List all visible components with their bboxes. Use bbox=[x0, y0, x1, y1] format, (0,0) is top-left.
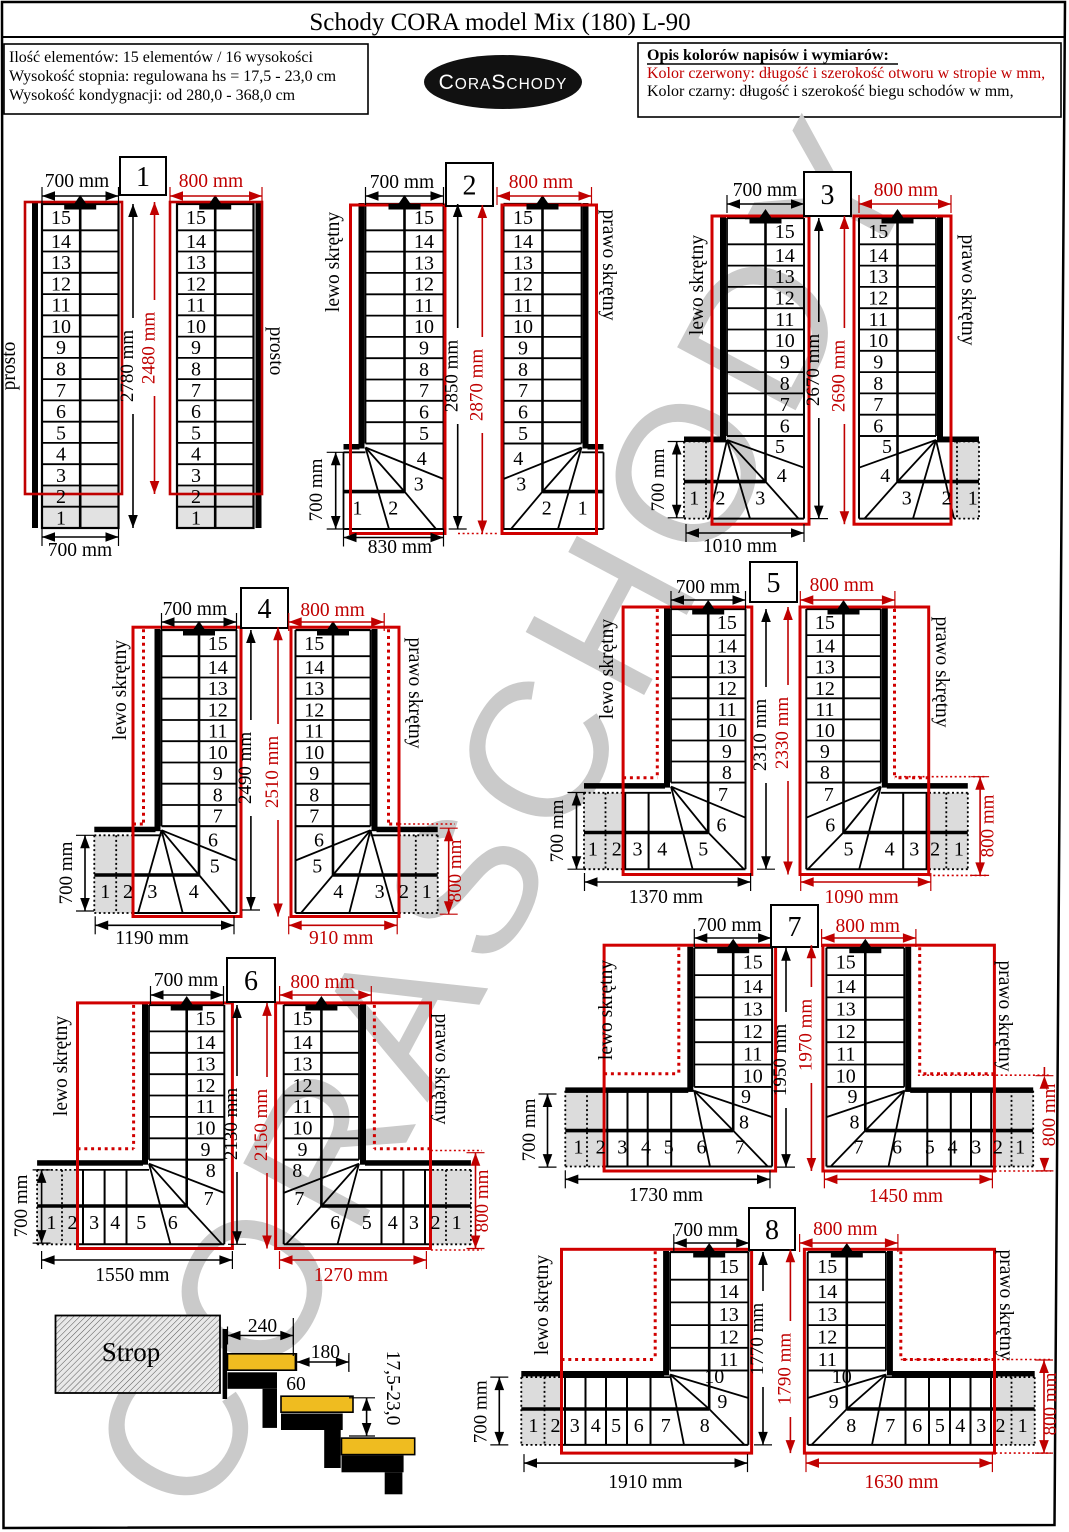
svg-text:700 mm: 700 mm bbox=[733, 180, 797, 201]
svg-text:1950 mm: 1950 mm bbox=[770, 1024, 791, 1097]
svg-text:5: 5 bbox=[518, 423, 528, 445]
svg-text:12: 12 bbox=[293, 1075, 313, 1097]
svg-text:10: 10 bbox=[815, 720, 835, 742]
svg-text:11: 11 bbox=[836, 1043, 855, 1065]
svg-text:4: 4 bbox=[258, 594, 272, 625]
svg-text:Wysokość kondygnacji: od 280,0: Wysokość kondygnacji: od 280,0 - 368,0 c… bbox=[9, 87, 296, 104]
svg-text:7: 7 bbox=[191, 380, 201, 402]
svg-text:6: 6 bbox=[780, 415, 790, 437]
svg-text:14: 14 bbox=[513, 231, 533, 253]
svg-text:prawo skrętny: prawo skrętny bbox=[931, 616, 952, 727]
svg-text:5: 5 bbox=[935, 1415, 945, 1437]
svg-text:1: 1 bbox=[136, 162, 150, 193]
svg-text:6: 6 bbox=[419, 402, 429, 424]
svg-text:5: 5 bbox=[844, 839, 854, 861]
svg-text:8: 8 bbox=[722, 762, 732, 784]
svg-text:15: 15 bbox=[868, 221, 888, 243]
svg-text:13: 13 bbox=[815, 657, 835, 679]
svg-text:2850 mm: 2850 mm bbox=[442, 340, 463, 413]
svg-text:14: 14 bbox=[775, 245, 795, 267]
svg-text:13: 13 bbox=[293, 1054, 313, 1076]
svg-text:10: 10 bbox=[743, 1066, 763, 1088]
svg-text:4: 4 bbox=[955, 1415, 965, 1437]
svg-text:14: 14 bbox=[414, 231, 434, 253]
svg-text:700 mm: 700 mm bbox=[163, 599, 227, 620]
svg-text:4: 4 bbox=[591, 1415, 601, 1437]
svg-text:5: 5 bbox=[312, 856, 322, 878]
svg-text:6: 6 bbox=[697, 1137, 707, 1159]
svg-text:180: 180 bbox=[311, 1342, 340, 1363]
svg-text:9: 9 bbox=[419, 338, 429, 360]
svg-text:Wysokość stopnia: regulowana: Wysokość stopnia: regulowana hs = 17,5 -… bbox=[9, 68, 337, 85]
svg-text:7: 7 bbox=[718, 784, 728, 806]
svg-text:15: 15 bbox=[836, 951, 856, 973]
svg-text:14: 14 bbox=[815, 636, 835, 658]
svg-text:15: 15 bbox=[304, 633, 324, 655]
svg-text:3: 3 bbox=[516, 473, 526, 495]
svg-text:800 mm: 800 mm bbox=[978, 794, 999, 857]
svg-text:1770 mm: 1770 mm bbox=[747, 1303, 768, 1376]
svg-text:5: 5 bbox=[767, 568, 781, 599]
svg-text:2: 2 bbox=[993, 1137, 1003, 1159]
svg-text:5: 5 bbox=[419, 423, 429, 445]
svg-text:5: 5 bbox=[210, 856, 220, 878]
svg-text:13: 13 bbox=[719, 1304, 739, 1326]
svg-text:700 mm: 700 mm bbox=[370, 172, 434, 193]
svg-text:4: 4 bbox=[189, 881, 199, 903]
svg-text:7: 7 bbox=[294, 1188, 304, 1210]
svg-text:8: 8 bbox=[56, 359, 66, 381]
svg-text:3: 3 bbox=[570, 1415, 580, 1437]
svg-text:9: 9 bbox=[717, 1391, 727, 1413]
svg-text:13: 13 bbox=[186, 252, 206, 274]
svg-text:14: 14 bbox=[743, 976, 763, 998]
svg-text:8: 8 bbox=[518, 359, 528, 381]
svg-text:700 mm: 700 mm bbox=[648, 448, 669, 511]
svg-text:2150 mm: 2150 mm bbox=[251, 1089, 272, 1162]
svg-text:14: 14 bbox=[817, 1281, 837, 1303]
svg-text:800 mm: 800 mm bbox=[290, 972, 354, 993]
svg-text:5: 5 bbox=[191, 422, 201, 444]
svg-text:13: 13 bbox=[717, 657, 737, 679]
svg-text:4: 4 bbox=[885, 839, 895, 861]
svg-text:prawo skrętny: prawo skrętny bbox=[957, 234, 978, 345]
svg-text:2: 2 bbox=[68, 1212, 78, 1234]
svg-text:830 mm: 830 mm bbox=[368, 537, 432, 558]
svg-text:prosto: prosto bbox=[265, 327, 286, 376]
svg-text:7: 7 bbox=[419, 380, 429, 402]
svg-text:1: 1 bbox=[46, 1212, 56, 1234]
svg-text:8: 8 bbox=[700, 1415, 710, 1437]
svg-text:3: 3 bbox=[89, 1212, 99, 1234]
svg-text:9: 9 bbox=[56, 337, 66, 359]
svg-text:7: 7 bbox=[309, 806, 319, 828]
svg-text:12: 12 bbox=[208, 699, 228, 721]
svg-text:1: 1 bbox=[422, 881, 432, 903]
svg-text:8: 8 bbox=[820, 762, 830, 784]
svg-text:2: 2 bbox=[123, 881, 133, 903]
svg-text:2: 2 bbox=[388, 498, 398, 520]
svg-text:14: 14 bbox=[196, 1032, 216, 1054]
svg-text:prawo skrętny: prawo skrętny bbox=[994, 960, 1015, 1071]
svg-text:15: 15 bbox=[513, 207, 533, 229]
svg-text:9: 9 bbox=[518, 338, 528, 360]
svg-text:Ilość elementów: 15 elementów: Ilość elementów: 15 elementów / 16 wysok… bbox=[9, 49, 313, 66]
svg-text:2: 2 bbox=[399, 881, 409, 903]
svg-text:8: 8 bbox=[780, 373, 790, 395]
svg-text:13: 13 bbox=[196, 1054, 216, 1076]
svg-text:700 mm: 700 mm bbox=[48, 540, 112, 561]
svg-text:lewo skrętny: lewo skrętny bbox=[687, 235, 708, 335]
svg-text:10: 10 bbox=[775, 330, 795, 352]
svg-text:11: 11 bbox=[305, 721, 324, 743]
svg-text:11: 11 bbox=[513, 295, 532, 317]
svg-text:12: 12 bbox=[51, 273, 71, 295]
svg-text:1: 1 bbox=[1015, 1137, 1025, 1159]
svg-text:6: 6 bbox=[518, 402, 528, 424]
svg-text:2130 mm: 2130 mm bbox=[221, 1088, 242, 1161]
svg-text:12: 12 bbox=[743, 1021, 763, 1043]
svg-text:2330 mm: 2330 mm bbox=[772, 697, 793, 770]
svg-text:7: 7 bbox=[56, 380, 66, 402]
svg-text:1: 1 bbox=[100, 881, 110, 903]
svg-text:10: 10 bbox=[836, 1066, 856, 1088]
svg-text:9: 9 bbox=[780, 352, 790, 374]
svg-text:8: 8 bbox=[765, 1215, 779, 1246]
svg-text:12: 12 bbox=[836, 1021, 856, 1043]
svg-text:lewo skrętny: lewo skrętny bbox=[597, 619, 618, 719]
svg-text:5: 5 bbox=[925, 1137, 935, 1159]
svg-text:10: 10 bbox=[196, 1118, 216, 1140]
svg-text:1: 1 bbox=[56, 507, 66, 529]
svg-text:5: 5 bbox=[362, 1212, 372, 1234]
svg-text:3: 3 bbox=[976, 1415, 986, 1437]
svg-text:9: 9 bbox=[298, 1139, 308, 1161]
svg-text:14: 14 bbox=[51, 231, 71, 253]
svg-text:2: 2 bbox=[612, 839, 622, 861]
svg-text:1010 mm: 1010 mm bbox=[703, 536, 777, 557]
svg-text:10: 10 bbox=[704, 1366, 724, 1388]
svg-text:1550 mm: 1550 mm bbox=[95, 1265, 169, 1286]
svg-text:2670 mm: 2670 mm bbox=[803, 334, 824, 407]
svg-text:4: 4 bbox=[333, 881, 343, 903]
svg-text:7: 7 bbox=[780, 394, 790, 416]
svg-text:8: 8 bbox=[873, 373, 883, 395]
svg-text:11: 11 bbox=[717, 699, 736, 721]
svg-text:14: 14 bbox=[208, 657, 228, 679]
svg-text:13: 13 bbox=[304, 678, 324, 700]
svg-text:6: 6 bbox=[912, 1415, 922, 1437]
svg-text:Opis kolorów napisów i wymiaró: Opis kolorów napisów i wymiarów: bbox=[647, 47, 889, 64]
svg-text:8: 8 bbox=[309, 784, 319, 806]
svg-text:15: 15 bbox=[186, 207, 206, 229]
svg-text:2780 mm: 2780 mm bbox=[117, 330, 138, 403]
svg-text:1190 mm: 1190 mm bbox=[115, 928, 189, 949]
svg-text:3: 3 bbox=[375, 881, 385, 903]
svg-text:1: 1 bbox=[573, 1137, 583, 1159]
svg-text:1: 1 bbox=[1018, 1415, 1028, 1437]
svg-text:700 mm: 700 mm bbox=[306, 458, 327, 521]
svg-text:4: 4 bbox=[948, 1137, 958, 1159]
svg-text:1: 1 bbox=[352, 498, 362, 520]
svg-text:800 mm: 800 mm bbox=[445, 839, 466, 902]
svg-text:2: 2 bbox=[56, 486, 66, 508]
svg-text:3: 3 bbox=[409, 1212, 419, 1234]
svg-text:800 mm: 800 mm bbox=[835, 916, 899, 937]
svg-text:800 mm: 800 mm bbox=[472, 1169, 493, 1232]
svg-text:700 mm: 700 mm bbox=[56, 841, 77, 904]
svg-text:6: 6 bbox=[825, 815, 835, 837]
svg-text:3: 3 bbox=[414, 473, 424, 495]
svg-text:700 mm: 700 mm bbox=[547, 799, 568, 862]
svg-text:12: 12 bbox=[414, 274, 434, 296]
svg-text:3: 3 bbox=[617, 1137, 627, 1159]
svg-text:12: 12 bbox=[513, 274, 533, 296]
svg-text:7: 7 bbox=[213, 806, 223, 828]
svg-text:7: 7 bbox=[204, 1188, 214, 1210]
svg-text:2480 mm: 2480 mm bbox=[139, 312, 160, 385]
svg-text:1730 mm: 1730 mm bbox=[629, 1185, 703, 1206]
svg-text:15: 15 bbox=[196, 1008, 216, 1030]
svg-text:15: 15 bbox=[293, 1008, 313, 1030]
svg-text:9: 9 bbox=[722, 741, 732, 763]
svg-text:2: 2 bbox=[463, 171, 477, 202]
svg-text:3: 3 bbox=[633, 839, 643, 861]
svg-text:15: 15 bbox=[414, 207, 434, 229]
svg-text:1630 mm: 1630 mm bbox=[864, 1472, 938, 1493]
svg-text:7: 7 bbox=[873, 394, 883, 416]
svg-text:13: 13 bbox=[208, 678, 228, 700]
svg-text:9: 9 bbox=[829, 1391, 839, 1413]
svg-text:8: 8 bbox=[213, 784, 223, 806]
svg-text:8: 8 bbox=[419, 359, 429, 381]
svg-text:lewo skrętny: lewo skrętny bbox=[110, 640, 131, 740]
svg-text:14: 14 bbox=[719, 1281, 739, 1303]
svg-text:9: 9 bbox=[873, 352, 883, 374]
svg-text:Kolor czerwony: długość i szer: Kolor czerwony: długość i szerokość otwo… bbox=[647, 65, 1045, 82]
svg-text:910 mm: 910 mm bbox=[309, 928, 373, 949]
svg-text:3: 3 bbox=[755, 488, 765, 510]
svg-text:13: 13 bbox=[775, 266, 795, 288]
svg-text:15: 15 bbox=[208, 633, 228, 655]
svg-text:1970 mm: 1970 mm bbox=[795, 999, 816, 1072]
svg-text:15: 15 bbox=[717, 612, 737, 634]
svg-text:2310 mm: 2310 mm bbox=[750, 699, 771, 772]
svg-text:700 mm: 700 mm bbox=[45, 171, 109, 192]
svg-text:14: 14 bbox=[293, 1032, 313, 1054]
svg-text:15: 15 bbox=[743, 951, 763, 973]
svg-text:11: 11 bbox=[186, 295, 205, 317]
svg-text:6: 6 bbox=[892, 1137, 902, 1159]
svg-text:4: 4 bbox=[56, 444, 66, 466]
svg-text:1: 1 bbox=[968, 488, 978, 510]
svg-text:13: 13 bbox=[868, 266, 888, 288]
svg-text:12: 12 bbox=[186, 273, 206, 295]
svg-text:800 mm: 800 mm bbox=[810, 575, 874, 596]
svg-text:10: 10 bbox=[293, 1118, 313, 1140]
svg-text:13: 13 bbox=[817, 1304, 837, 1326]
svg-text:13: 13 bbox=[51, 252, 71, 274]
svg-text:15: 15 bbox=[719, 1256, 739, 1278]
svg-text:2: 2 bbox=[930, 839, 940, 861]
svg-text:4: 4 bbox=[657, 839, 667, 861]
svg-text:1: 1 bbox=[689, 488, 699, 510]
svg-text:lewo skrętny: lewo skrętny bbox=[596, 960, 617, 1060]
svg-text:7: 7 bbox=[854, 1137, 864, 1159]
svg-text:2: 2 bbox=[542, 498, 552, 520]
svg-text:3: 3 bbox=[56, 465, 66, 487]
svg-text:prawo skrętny: prawo skrętny bbox=[430, 1013, 451, 1124]
svg-text:11: 11 bbox=[293, 1096, 312, 1118]
svg-text:lewo skrętny: lewo skrętny bbox=[51, 1016, 72, 1116]
svg-text:5: 5 bbox=[775, 436, 785, 458]
svg-text:8: 8 bbox=[739, 1112, 749, 1134]
svg-text:2: 2 bbox=[431, 1212, 441, 1234]
svg-text:800 mm: 800 mm bbox=[300, 600, 364, 621]
svg-text:11: 11 bbox=[51, 295, 70, 317]
svg-text:6: 6 bbox=[330, 1212, 340, 1234]
svg-text:6: 6 bbox=[56, 401, 66, 423]
svg-text:800 mm: 800 mm bbox=[874, 180, 938, 201]
svg-text:2870 mm: 2870 mm bbox=[466, 349, 487, 422]
svg-text:7: 7 bbox=[518, 380, 528, 402]
svg-text:2: 2 bbox=[596, 1137, 606, 1159]
svg-text:6: 6 bbox=[314, 830, 324, 852]
svg-text:11: 11 bbox=[414, 295, 433, 317]
svg-text:3: 3 bbox=[909, 839, 919, 861]
svg-text:4: 4 bbox=[641, 1137, 651, 1159]
svg-text:700 mm: 700 mm bbox=[11, 1174, 32, 1237]
svg-text:9: 9 bbox=[820, 741, 830, 763]
svg-text:1: 1 bbox=[528, 1415, 538, 1437]
svg-text:7: 7 bbox=[735, 1137, 745, 1159]
svg-text:12: 12 bbox=[304, 699, 324, 721]
svg-text:7: 7 bbox=[885, 1415, 895, 1437]
svg-text:2: 2 bbox=[996, 1415, 1006, 1437]
svg-text:prawo skrętny: prawo skrętny bbox=[404, 637, 425, 748]
svg-text:12: 12 bbox=[719, 1326, 739, 1348]
svg-text:8: 8 bbox=[191, 359, 201, 381]
svg-text:6: 6 bbox=[168, 1212, 178, 1234]
svg-text:13: 13 bbox=[513, 252, 533, 274]
svg-text:1270 mm: 1270 mm bbox=[314, 1265, 388, 1286]
svg-text:lewo skrętny: lewo skrętny bbox=[323, 212, 344, 312]
svg-text:6: 6 bbox=[634, 1415, 644, 1437]
svg-text:800 mm: 800 mm bbox=[813, 1219, 877, 1240]
svg-text:4: 4 bbox=[777, 465, 787, 487]
svg-text:1370 mm: 1370 mm bbox=[629, 887, 703, 908]
svg-text:2: 2 bbox=[191, 486, 201, 508]
svg-text:800 mm: 800 mm bbox=[1039, 1083, 1060, 1146]
svg-text:700 mm: 700 mm bbox=[674, 1220, 738, 1241]
svg-text:11: 11 bbox=[869, 309, 888, 331]
svg-text:8: 8 bbox=[850, 1112, 860, 1134]
svg-text:2: 2 bbox=[715, 488, 725, 510]
svg-text:Kolor czarny: długość i szerok: Kolor czarny: długość i szerokość biegu … bbox=[647, 83, 1014, 100]
svg-text:700 mm: 700 mm bbox=[471, 1380, 492, 1443]
svg-text:700 mm: 700 mm bbox=[676, 577, 740, 598]
svg-text:10: 10 bbox=[868, 330, 888, 352]
svg-text:10: 10 bbox=[513, 316, 533, 338]
svg-text:800 mm: 800 mm bbox=[179, 171, 243, 192]
svg-text:4: 4 bbox=[880, 465, 890, 487]
svg-text:11: 11 bbox=[815, 699, 834, 721]
svg-text:Schody CORA model Mix (180) L-: Schody CORA model Mix (180) L-90 bbox=[309, 9, 690, 36]
svg-text:1790 mm: 1790 mm bbox=[774, 1333, 795, 1406]
svg-text:12: 12 bbox=[196, 1075, 216, 1097]
svg-text:12: 12 bbox=[815, 678, 835, 700]
svg-text:11: 11 bbox=[208, 721, 227, 743]
svg-text:prosto: prosto bbox=[0, 342, 20, 391]
svg-text:9: 9 bbox=[191, 337, 201, 359]
svg-text:4: 4 bbox=[191, 444, 201, 466]
svg-text:5: 5 bbox=[698, 839, 708, 861]
svg-text:1450 mm: 1450 mm bbox=[869, 1186, 943, 1207]
svg-text:15: 15 bbox=[51, 207, 71, 229]
svg-text:11: 11 bbox=[743, 1043, 762, 1065]
svg-text:9: 9 bbox=[309, 763, 319, 785]
svg-text:5: 5 bbox=[882, 436, 892, 458]
svg-text:10: 10 bbox=[304, 742, 324, 764]
svg-text:lewo skrętny: lewo skrętny bbox=[532, 1255, 553, 1355]
svg-text:1: 1 bbox=[578, 498, 588, 520]
svg-text:2: 2 bbox=[551, 1415, 561, 1437]
svg-text:5: 5 bbox=[664, 1137, 674, 1159]
svg-text:9: 9 bbox=[201, 1139, 211, 1161]
svg-text:2: 2 bbox=[942, 488, 952, 510]
svg-text:1: 1 bbox=[954, 839, 964, 861]
svg-text:10: 10 bbox=[208, 742, 228, 764]
svg-text:15: 15 bbox=[817, 1256, 837, 1278]
svg-text:6: 6 bbox=[208, 830, 218, 852]
svg-text:8: 8 bbox=[846, 1415, 856, 1437]
svg-text:10: 10 bbox=[832, 1366, 852, 1388]
svg-text:7: 7 bbox=[661, 1415, 671, 1437]
svg-text:8: 8 bbox=[292, 1160, 302, 1182]
svg-text:11: 11 bbox=[775, 309, 794, 331]
svg-text:1: 1 bbox=[588, 839, 598, 861]
svg-text:prawo skrętny: prawo skrętny bbox=[995, 1249, 1016, 1360]
svg-text:240: 240 bbox=[248, 1316, 277, 1337]
svg-text:5: 5 bbox=[136, 1212, 146, 1234]
svg-text:9: 9 bbox=[848, 1086, 858, 1108]
svg-text:700 mm: 700 mm bbox=[154, 970, 218, 991]
svg-text:5: 5 bbox=[56, 422, 66, 444]
svg-text:6: 6 bbox=[873, 415, 883, 437]
svg-text:3: 3 bbox=[902, 488, 912, 510]
svg-text:4: 4 bbox=[110, 1212, 120, 1234]
svg-text:6: 6 bbox=[244, 966, 258, 997]
svg-text:prawo skrętny: prawo skrętny bbox=[598, 209, 619, 320]
svg-text:12: 12 bbox=[717, 678, 737, 700]
svg-text:Strop: Strop bbox=[102, 1337, 161, 1367]
svg-text:9: 9 bbox=[741, 1086, 751, 1108]
svg-text:14: 14 bbox=[186, 231, 206, 253]
svg-text:9: 9 bbox=[213, 763, 223, 785]
svg-text:2490 mm: 2490 mm bbox=[235, 732, 256, 805]
svg-text:7: 7 bbox=[788, 912, 802, 943]
svg-text:17,5-23,0: 17,5-23,0 bbox=[382, 1351, 403, 1426]
svg-text:1: 1 bbox=[452, 1212, 462, 1234]
svg-text:800 mm: 800 mm bbox=[1040, 1372, 1061, 1435]
svg-text:4: 4 bbox=[388, 1212, 398, 1234]
svg-text:4: 4 bbox=[513, 448, 523, 470]
svg-text:11: 11 bbox=[196, 1096, 215, 1118]
svg-text:15: 15 bbox=[775, 221, 795, 243]
svg-text:14: 14 bbox=[868, 245, 888, 267]
svg-text:2510 mm: 2510 mm bbox=[262, 736, 283, 809]
svg-text:10: 10 bbox=[51, 316, 71, 338]
